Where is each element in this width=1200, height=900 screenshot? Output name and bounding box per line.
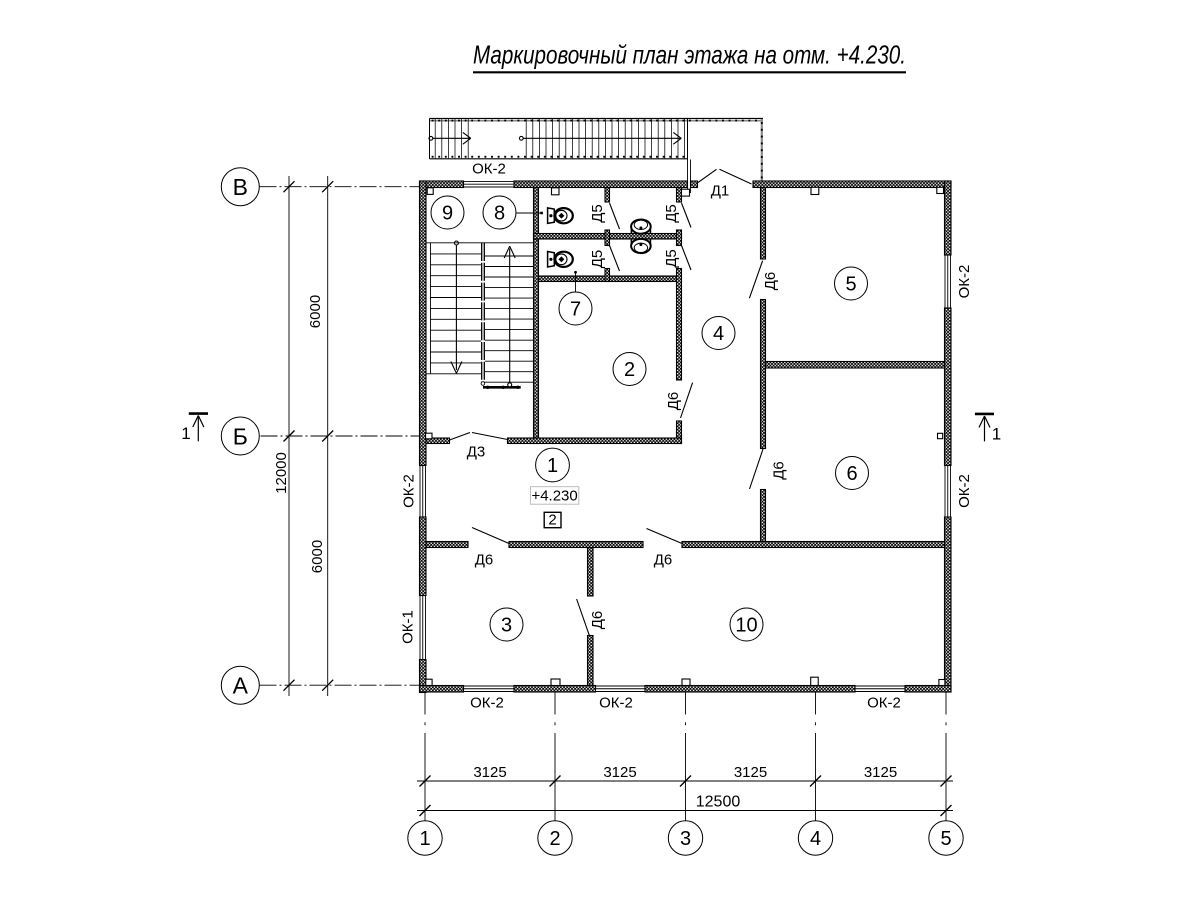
svg-text:Д6: Д6 (589, 611, 606, 630)
svg-text:12000: 12000 (273, 452, 290, 494)
svg-text:ОК-2: ОК-2 (470, 695, 504, 712)
svg-text:8: 8 (494, 203, 505, 225)
svg-text:6000: 6000 (307, 295, 324, 328)
svg-text:ОК-2: ОК-2 (956, 474, 973, 508)
svg-text:ОК-2: ОК-2 (400, 474, 417, 508)
svg-text:7: 7 (570, 299, 581, 321)
svg-text:ОК-2: ОК-2 (867, 695, 901, 712)
svg-text:ОК-2: ОК-2 (956, 265, 973, 299)
svg-text:1: 1 (419, 828, 430, 850)
svg-text:1: 1 (181, 424, 190, 443)
svg-text:Д5: Д5 (589, 204, 606, 223)
svg-text:2: 2 (624, 359, 635, 381)
svg-text:ОК-1: ОК-1 (399, 610, 416, 644)
svg-text:4: 4 (810, 828, 821, 850)
svg-text:9: 9 (442, 203, 453, 225)
svg-text:Д6: Д6 (654, 552, 673, 569)
svg-text:ОК-2: ОК-2 (599, 695, 633, 712)
svg-text:3125: 3125 (734, 764, 767, 781)
svg-text:Д1: Д1 (711, 183, 730, 200)
svg-text:3: 3 (680, 828, 691, 850)
svg-text:4: 4 (713, 323, 724, 345)
svg-text:ОК-2: ОК-2 (472, 161, 506, 178)
svg-text:3125: 3125 (864, 764, 897, 781)
svg-text:3: 3 (501, 615, 512, 637)
svg-text:Д6: Д6 (762, 272, 779, 291)
svg-text:Д5: Д5 (663, 249, 680, 268)
svg-text:6000: 6000 (309, 540, 326, 573)
svg-text:5: 5 (845, 274, 856, 296)
svg-text:2: 2 (548, 512, 556, 529)
svg-text:В: В (233, 174, 248, 200)
svg-text:Д6: Д6 (665, 392, 682, 411)
svg-text:+4.230: +4.230 (531, 488, 577, 505)
svg-text:12500: 12500 (696, 793, 741, 810)
svg-text:Б: Б (233, 423, 248, 449)
svg-text:1: 1 (547, 455, 558, 477)
svg-text:Маркировочный план этажа на от: Маркировочный план этажа на отм. +4.230. (473, 40, 906, 70)
svg-text:6: 6 (846, 463, 857, 485)
svg-text:3125: 3125 (603, 764, 636, 781)
svg-text:Д5: Д5 (663, 204, 680, 223)
svg-text:5: 5 (940, 828, 951, 850)
svg-text:2: 2 (549, 828, 560, 850)
svg-text:Д6: Д6 (475, 552, 494, 569)
svg-text:1: 1 (992, 425, 1001, 444)
svg-text:Д5: Д5 (589, 250, 606, 269)
svg-text:А: А (233, 673, 249, 699)
svg-text:Д3: Д3 (467, 444, 486, 461)
svg-text:3125: 3125 (473, 764, 506, 781)
svg-text:10: 10 (735, 615, 757, 637)
svg-text:Д6: Д6 (770, 461, 787, 480)
